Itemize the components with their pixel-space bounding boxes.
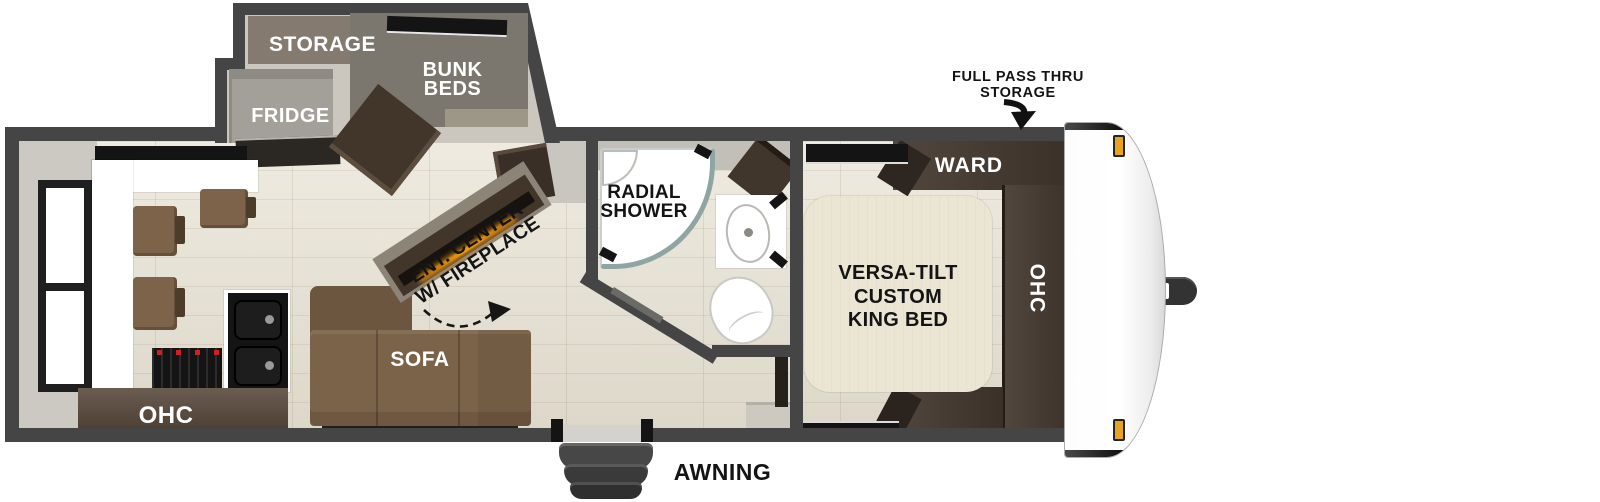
stool-leg xyxy=(175,288,185,317)
king-bed-label: VERSA-TILT CUSTOM KING BED xyxy=(804,262,992,333)
radial-shower-label: RADIAL SHOWER xyxy=(588,184,700,221)
stove-knobs xyxy=(157,350,219,355)
bottom-wall xyxy=(5,428,1072,442)
front-cap xyxy=(1064,122,1166,458)
rear-wall xyxy=(5,127,19,442)
sink-basin xyxy=(234,346,282,386)
top-wall-rear xyxy=(5,127,218,141)
galley-top-band xyxy=(19,141,97,166)
shower-seat xyxy=(602,150,638,186)
kitchen-sink xyxy=(228,293,288,392)
kitchen-ohc-label: OHC xyxy=(116,404,216,428)
rear-window-pane-top xyxy=(46,188,84,283)
entry-door-jamb xyxy=(641,419,653,442)
toilet-seat-line xyxy=(725,306,769,341)
marker-light xyxy=(1113,135,1125,157)
stool xyxy=(200,189,248,228)
bedroom-ohc-label: OHC xyxy=(1027,239,1048,339)
rear-window-pane-bottom xyxy=(46,291,84,384)
stool xyxy=(133,277,177,330)
full-pass-thru-label: FULL PASS THRU STORAGE xyxy=(943,69,1093,101)
sink-drain xyxy=(265,315,274,324)
bedroom-partition-wall xyxy=(790,141,803,442)
bath-sink-drain xyxy=(744,228,753,237)
bunk-mattress-edge xyxy=(445,109,528,127)
marker-light xyxy=(1113,419,1125,441)
front-cap-top-trim xyxy=(1065,123,1165,130)
entry-door-jamb xyxy=(551,419,563,442)
stool-leg xyxy=(175,216,185,244)
stool-leg xyxy=(246,197,256,218)
storage-label: STORAGE xyxy=(255,34,390,55)
sofa-seam xyxy=(458,330,460,426)
entry-door-threshold xyxy=(554,425,650,442)
awning-label: AWNING xyxy=(650,461,795,484)
fridge-label: FRIDGE xyxy=(243,106,338,126)
storage-pointer-arrow xyxy=(1000,99,1038,131)
bathroom-left-wall xyxy=(586,141,598,281)
fridge-top-shade xyxy=(232,69,333,79)
rear-window-frame xyxy=(38,180,92,392)
bedroom-door xyxy=(775,357,788,407)
bedroom-window-top xyxy=(806,144,908,164)
top-wall-front xyxy=(545,127,1072,141)
sofa-seam xyxy=(376,330,378,426)
sink-drain xyxy=(265,361,274,370)
entry-steps xyxy=(559,442,653,500)
stove xyxy=(152,348,222,392)
dashed-swivel-arrow xyxy=(418,296,513,338)
floorplan: STORAGE BUNK BEDS FRIDGE xyxy=(0,0,1600,502)
sofa xyxy=(310,330,531,426)
kitchen-counter-left xyxy=(92,160,133,392)
ward-label: WARD xyxy=(919,155,1019,176)
entry-step xyxy=(570,482,642,499)
front-cap-bottom-trim xyxy=(1065,450,1165,457)
stool xyxy=(133,206,177,256)
sofa-armrest xyxy=(478,330,531,426)
bunk-beds-label: BUNK BEDS xyxy=(405,61,500,99)
sofa-label: SOFA xyxy=(370,349,470,370)
sink-basin xyxy=(234,300,282,340)
